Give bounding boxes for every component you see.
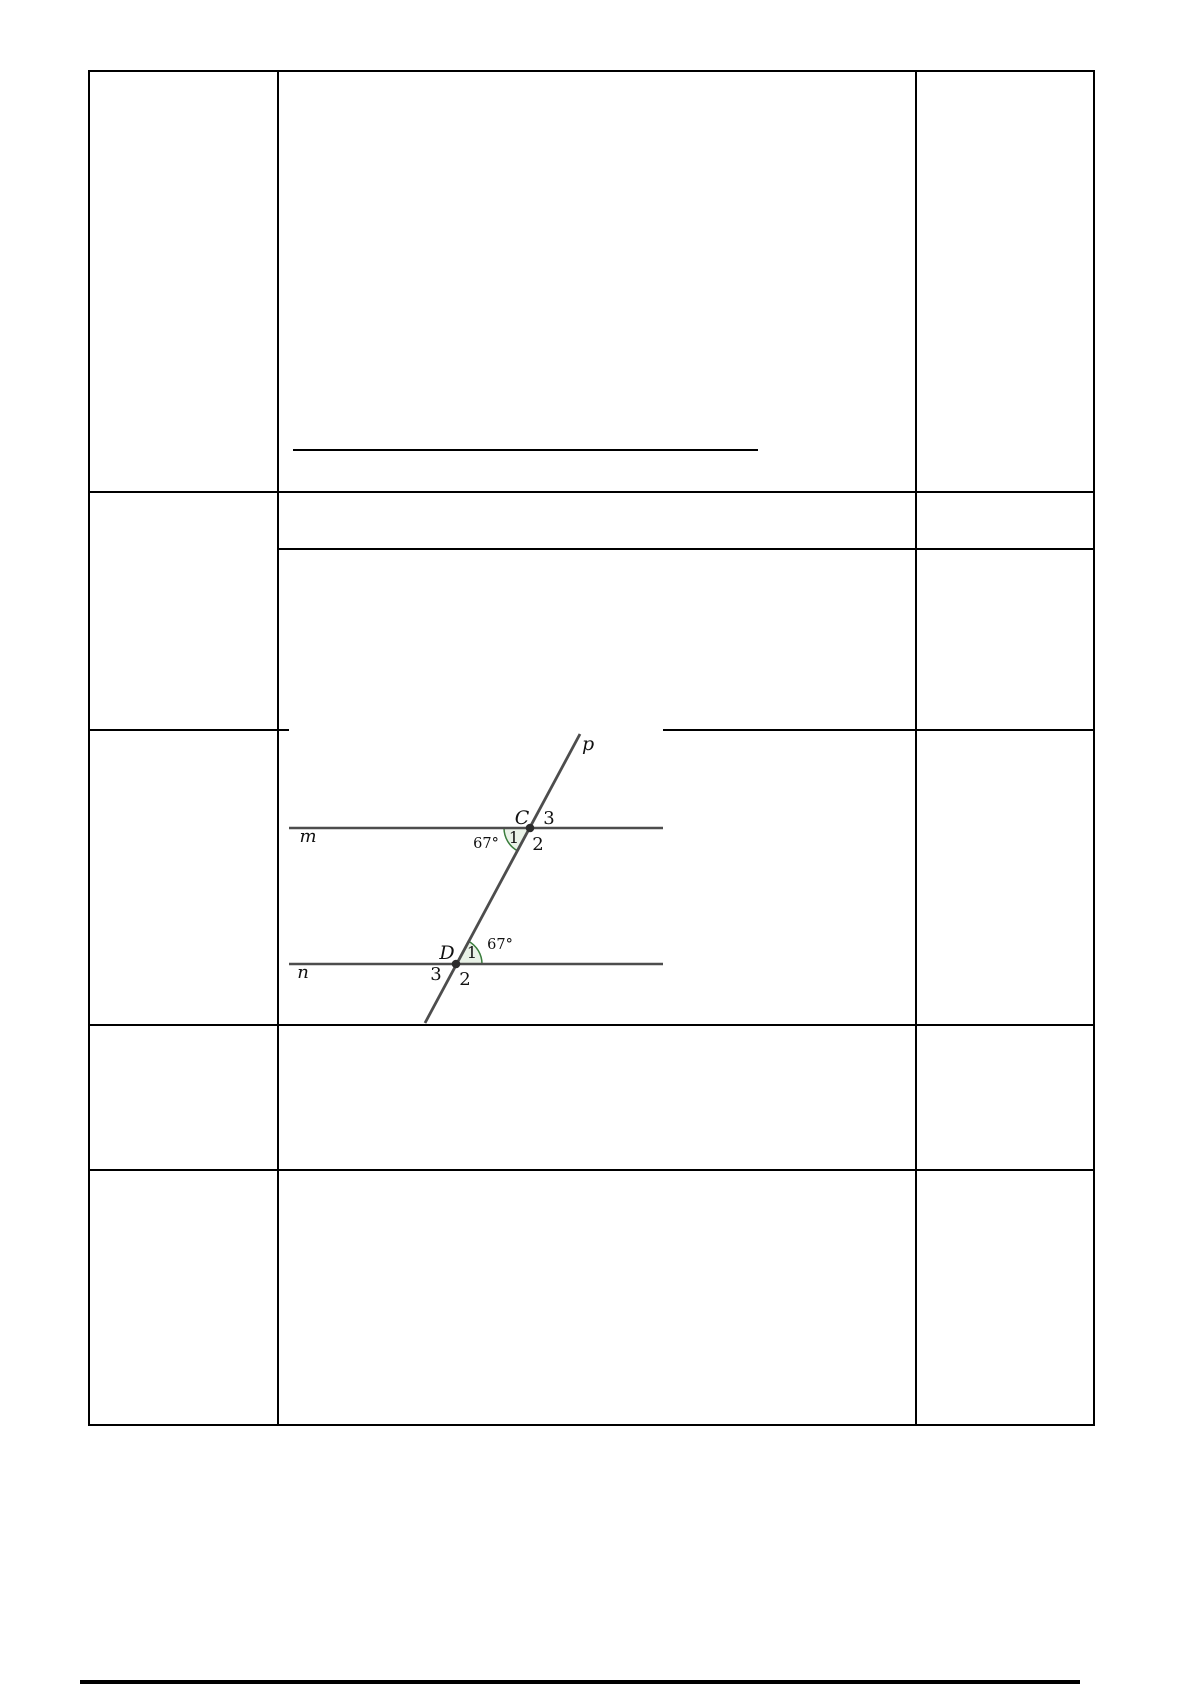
label-d-angle-1: 1 <box>467 943 477 962</box>
row-separator-5 <box>89 1169 1095 1171</box>
answer-blank-line <box>293 449 758 451</box>
row-separator-2-middle-right <box>278 548 1095 550</box>
label-d-measure: 67° <box>487 937 513 953</box>
column-divider-1 <box>277 70 279 1426</box>
worksheet-page: p m n C 3 1 2 67° D 1 67° 3 2 <box>0 0 1192 1685</box>
transversal-p <box>425 734 580 1023</box>
label-c-angle-2: 2 <box>532 834 543 855</box>
label-c-angle-1: 1 <box>509 828 519 847</box>
label-point-c: C <box>515 807 530 829</box>
label-point-d: D <box>438 942 454 964</box>
label-p: p <box>582 733 594 755</box>
label-c-angle-3: 3 <box>543 808 554 829</box>
label-d-angle-2: 2 <box>459 969 470 990</box>
column-divider-2 <box>915 70 917 1426</box>
row-separator-1 <box>89 491 1095 493</box>
row-separator-3-left-segment <box>89 729 289 731</box>
footer-rule <box>80 1680 1080 1684</box>
parallel-lines-diagram: p m n C 3 1 2 67° D 1 67° 3 2 <box>280 722 680 1028</box>
table-border-bottom <box>89 1424 1095 1426</box>
row-separator-3-right-segment <box>663 729 1095 731</box>
label-c-measure: 67° <box>473 836 499 852</box>
table-border-right <box>1093 70 1095 1426</box>
table-border-left <box>88 70 90 1426</box>
table-border-top <box>89 70 1095 72</box>
label-n: n <box>297 962 309 983</box>
label-m: m <box>299 826 316 847</box>
label-d-angle-3: 3 <box>430 964 441 985</box>
